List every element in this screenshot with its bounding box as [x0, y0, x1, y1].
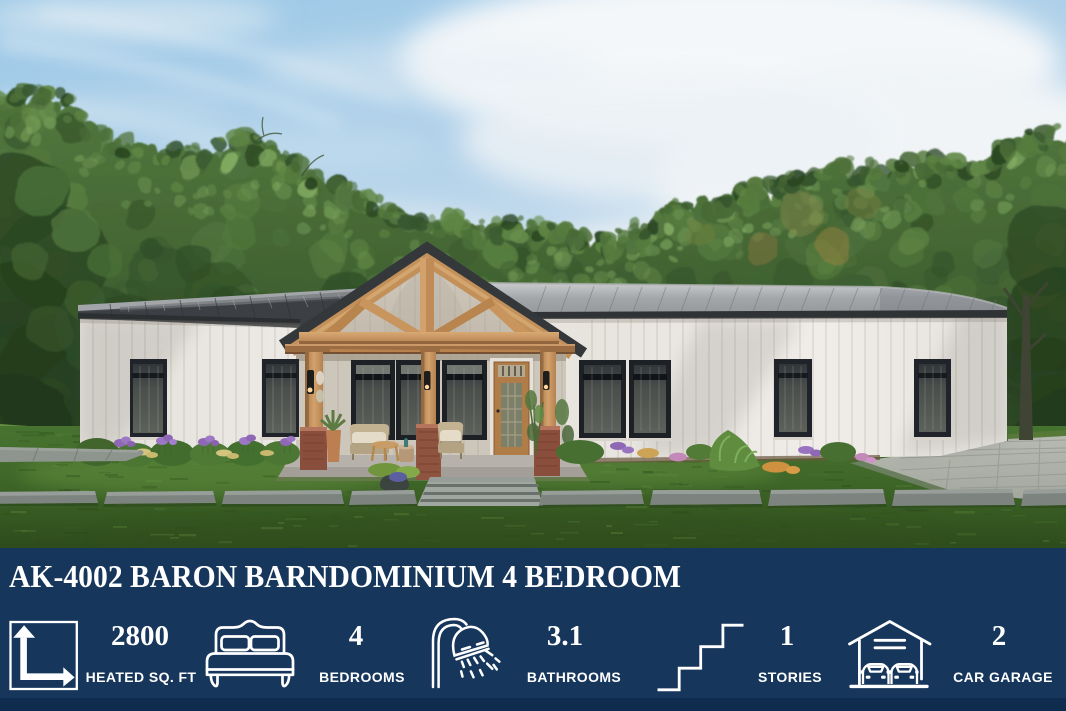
svg-text:2: 2 [992, 620, 1007, 652]
svg-text:1: 1 [780, 620, 795, 652]
svg-text:STORIES: STORIES [758, 669, 822, 685]
svg-text:CAR GARAGE: CAR GARAGE [953, 669, 1053, 685]
svg-text:2800: 2800 [111, 620, 169, 652]
svg-text:3.1: 3.1 [547, 620, 583, 652]
svg-text:HEATED SQ. FT: HEATED SQ. FT [86, 669, 197, 685]
svg-text:BATHROOMS: BATHROOMS [527, 669, 621, 685]
svg-text:BEDROOMS: BEDROOMS [319, 669, 405, 685]
svg-text:AK-4002 BARON BARNDOMINIUM 4 B: AK-4002 BARON BARNDOMINIUM 4 BEDROOM [9, 558, 681, 594]
svg-text:4: 4 [349, 620, 364, 652]
